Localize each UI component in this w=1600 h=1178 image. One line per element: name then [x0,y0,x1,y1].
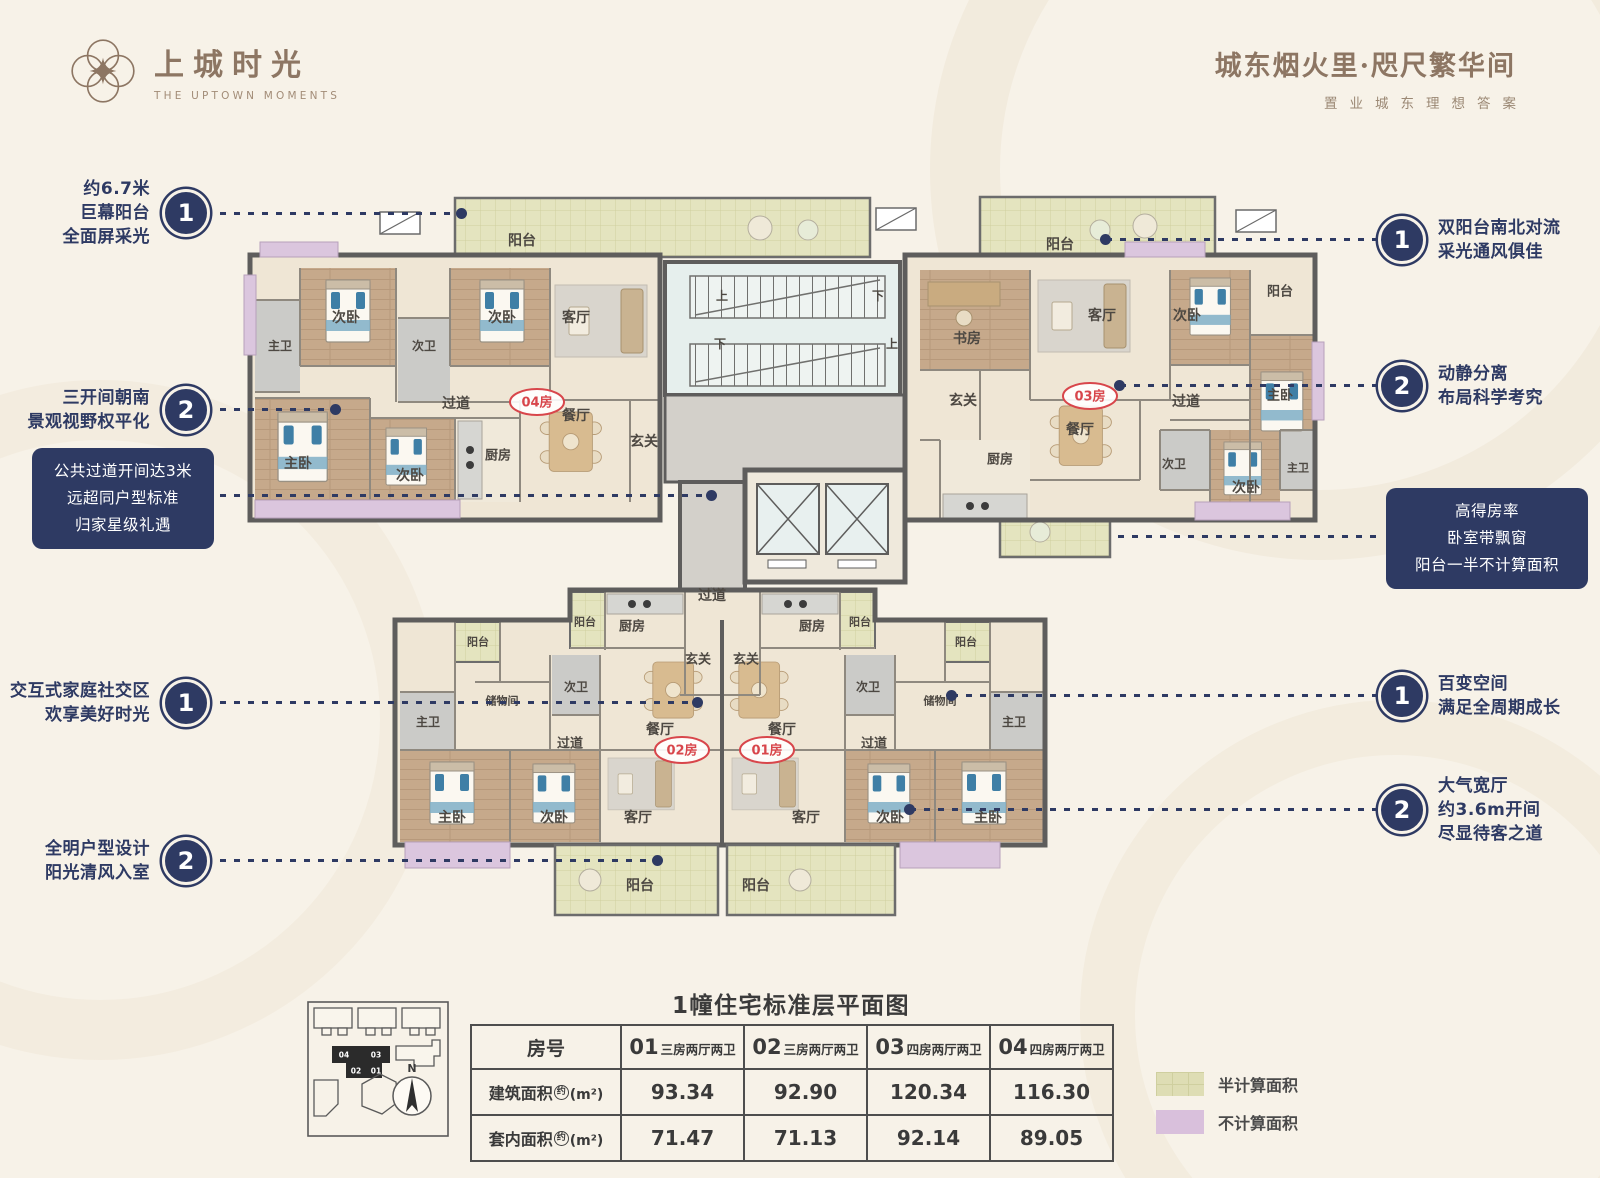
callout-text: 欢享美好时光 [2,703,150,727]
area-value: 71.47 [621,1115,744,1161]
room-label: 次卧 [1173,307,1201,324]
tagline-main: 城东烟火里·咫尺繁华间 [1215,44,1516,83]
room-label: 餐厅 [767,721,796,738]
legend-label: 不计算面积 [1218,1110,1298,1134]
callout-dot [330,404,341,415]
callout-badge: 2 [162,386,210,434]
callout-dot [692,697,703,708]
callout-text: 三开间朝南 [2,386,150,410]
callout-left-1: 约6.7米 巨幕阳台 全面屏采光 1 [2,177,210,249]
room-label: 主卧 [438,809,466,826]
callout-left-3: 交互式家庭社交区 欢享美好时光 1 [2,679,210,727]
room-label: 玄关 [733,652,759,668]
room-label: 次卧 [488,309,516,326]
room-label: 过道 [442,395,470,412]
room-label: 次卧 [1232,479,1260,496]
room-label: 阳台 [626,877,654,894]
callout-text: 景观视野权平化 [2,410,150,434]
area-value: 71.13 [744,1115,867,1161]
north-label: N [407,1062,416,1075]
callout-badge: 1 [162,189,210,237]
room-label: 厨房 [619,619,645,635]
callout-right-1: 1 双阳台南北对流 采光通风俱佳 [1378,216,1561,264]
keyplan-unit-number: 02 [351,1067,361,1076]
room-label: 客厅 [791,809,820,826]
table-row: 套内面积约(m²)71.4771.1392.1489.05 [471,1115,1113,1161]
table-row: 建筑面积约(m²)93.3492.90120.34116.30 [471,1069,1113,1115]
callout-line [192,859,657,862]
keyplan-unit-number: 03 [371,1051,381,1060]
room-label: 次卫 [412,338,436,353]
table-row-header: 套内面积约(m²) [471,1115,621,1161]
room-label: 过道 [698,587,726,604]
callout-text: 阳台一半不计算面积 [1398,552,1576,579]
room-label: 主卧 [1267,388,1293,404]
legend-swatch-half [1156,1072,1204,1096]
keyplan-unit-number: 04 [339,1051,349,1060]
room-label: 主卫 [1287,461,1309,475]
area-value: 92.90 [744,1069,867,1115]
callout-text: 满足全周期成长 [1438,696,1561,720]
callout-text: 巨幕阳台 [2,201,150,225]
room-label: 餐厅 [561,407,590,424]
area-table-wrap: 房号01三房两厅两卫02三房两厅两卫03四房两厅两卫04四房两厅两卫 建筑面积约… [470,1024,1114,1162]
room-label: 厨房 [485,448,511,464]
table-column-header: 01三房两厅两卫 [621,1025,744,1069]
room-label: 过道 [1172,393,1200,410]
callout-text: 全明户型设计 [2,837,150,861]
legend-item-half: 半计算面积 [1156,1072,1298,1096]
callout-text: 百变空间 [1438,672,1561,696]
callout-line [192,212,462,215]
callout-text: 公共过道开间达3米 [44,458,202,485]
table-column-header: 02三房两厅两卫 [744,1025,867,1069]
room-label: 过道 [557,736,583,752]
callout-text: 动静分离 [1438,362,1543,386]
room-label: 上 [886,336,898,351]
callout-dot [652,855,663,866]
room-label: 客厅 [1087,307,1116,324]
room-label: 阳台 [1267,284,1293,300]
callout-text: 约3.6m开间 [1438,798,1543,822]
callout-badge: 2 [1378,786,1426,834]
brand-logo: 上城时光 THE UPTOWN MOMENTS [66,34,340,108]
callout-badge: 2 [1378,362,1426,410]
callout-dot [456,208,467,219]
room-label: 玄关 [949,392,977,409]
callout-badge: 1 [1378,216,1426,264]
callout-text: 约6.7米 [2,177,150,201]
callout-box-right: 高得房率 卧室带飘窗 阳台一半不计算面积 [1386,488,1588,589]
legend-label: 半计算面积 [1218,1072,1298,1096]
site-key-plan: 04030201 N [298,962,458,1147]
room-label: 主卧 [284,455,312,472]
room-label: 次卧 [396,467,424,484]
room-label: 阳台 [574,615,596,629]
brand-name-en: THE UPTOWN MOMENTS [154,90,340,102]
legend-swatch-none [1156,1110,1204,1134]
callout-dot [946,690,957,701]
room-label: 主卫 [1002,714,1026,729]
callout-text: 布局科学考究 [1438,386,1543,410]
room-label: 阳台 [849,615,871,629]
legend: 半计算面积 不计算面积 [1156,1072,1298,1148]
room-label: 下 [872,289,884,303]
callout-line [1120,384,1376,387]
callout-text: 高得房率 [1398,498,1576,525]
room-label: 厨房 [987,452,1013,468]
callout-badge: 1 [162,679,210,727]
room-label: 玄关 [685,652,711,668]
room-label: 次卫 [1162,456,1186,471]
room-label: 书房 [953,330,981,347]
brand-logo-icon [66,34,140,108]
callout-badge: 2 [162,837,210,885]
callout-dot [904,804,915,815]
room-label: 次卫 [856,679,880,694]
area-value: 92.14 [867,1115,990,1161]
table-column-header: 04四房两厅两卫 [990,1025,1113,1069]
callout-line [192,408,337,411]
room-label: 过道 [861,736,887,752]
plan-title: 1幢住宅标准层平面图 [470,986,1112,1020]
room-label: 餐厅 [645,721,674,738]
room-label: 次卧 [540,809,568,826]
legend-item-none: 不计算面积 [1156,1110,1298,1134]
callout-dot [1114,380,1125,391]
room-label: 餐厅 [1065,421,1094,438]
callout-right-2: 2 动静分离 布局科学考究 [1378,362,1543,410]
room-label: 次卫 [564,679,588,694]
callout-text: 大气宽厅 [1438,774,1543,798]
callout-text: 卧室带飘窗 [1398,525,1576,552]
callout-dot [1100,234,1111,245]
callout-left-4: 全明户型设计 阳光清风入室 2 [2,837,210,885]
unit-number-badge: 04房 [521,395,552,411]
callout-text: 尽显待客之道 [1438,822,1543,846]
unit-number-badge: 03房 [1074,389,1105,405]
unit-number-badge: 02房 [666,743,697,759]
room-label: 厨房 [799,619,825,635]
callout-text: 双阳台南北对流 [1438,216,1561,240]
poster-page: 上城时光 THE UPTOWN MOMENTS 城东烟火里·咫尺繁华间 置业城东… [0,0,1600,1178]
callout-text: 全面屏采光 [2,225,150,249]
callout-line [952,694,1376,697]
table-column-header: 03四房两厅两卫 [867,1025,990,1069]
room-label: 阳台 [955,635,977,649]
room-label: 阳台 [1046,236,1074,253]
room-label: 上 [716,288,728,303]
room-label: 主卫 [268,338,292,353]
room-label: 主卫 [416,714,440,729]
table-header-row: 房号01三房两厅两卫02三房两厅两卫03四房两厅两卫04四房两厅两卫 [471,1025,1113,1069]
room-label: 阳台 [742,877,770,894]
room-label: 客厅 [623,809,652,826]
table-row-header: 建筑面积约(m²) [471,1069,621,1115]
room-label: 次卧 [876,809,904,826]
callout-badge: 1 [1378,672,1426,720]
callout-text: 归家星级礼遇 [44,512,202,539]
area-value: 89.05 [990,1115,1113,1161]
callout-right-4: 2 大气宽厅 约3.6m开间 尽显待客之道 [1378,774,1543,846]
unit-number-badge: 01房 [751,743,782,759]
callout-line [192,494,712,497]
room-label: 主卧 [974,809,1002,826]
brand-name: 上城时光 [154,40,340,84]
callout-box-left: 公共过道开间达3米 远超同户型标准 归家星级礼遇 [32,448,214,549]
room-label: 下 [714,337,726,351]
callout-text: 阳光清风入室 [2,861,150,885]
callout-right-3: 1 百变空间 满足全周期成长 [1378,672,1561,720]
room-label: 玄关 [630,433,658,450]
callout-line [1106,238,1376,241]
floor-plan: 阳台次卧次卧客厅主卫次卫过道餐厅玄关厨房主卧次卧上下下上过道阳台阳台书房客厅次卧… [240,150,1330,970]
room-label: 客厅 [561,309,590,326]
callout-left-2: 三开间朝南 景观视野权平化 2 [2,386,210,434]
callout-dot [706,490,717,501]
callout-line [192,701,697,704]
area-value: 93.34 [621,1069,744,1115]
area-table: 房号01三房两厅两卫02三房两厅两卫03四房两厅两卫04四房两厅两卫 建筑面积约… [470,1024,1114,1162]
callout-text: 远超同户型标准 [44,485,202,512]
callout-line [1118,535,1380,538]
area-value: 120.34 [867,1069,990,1115]
callout-text: 采光通风俱佳 [1438,240,1561,264]
tagline-sub: 置业城东理想答案 [1215,92,1528,112]
room-label: 次卧 [332,309,360,326]
room-label: 阳台 [467,635,489,649]
campaign-tagline: 城东烟火里·咫尺繁华间 置业城东理想答案 [1215,44,1516,112]
table-corner-header: 房号 [471,1025,621,1069]
callout-text: 交互式家庭社交区 [2,679,150,703]
area-value: 116.30 [990,1069,1113,1115]
callout-line [910,808,1376,811]
room-label: 阳台 [508,232,536,249]
